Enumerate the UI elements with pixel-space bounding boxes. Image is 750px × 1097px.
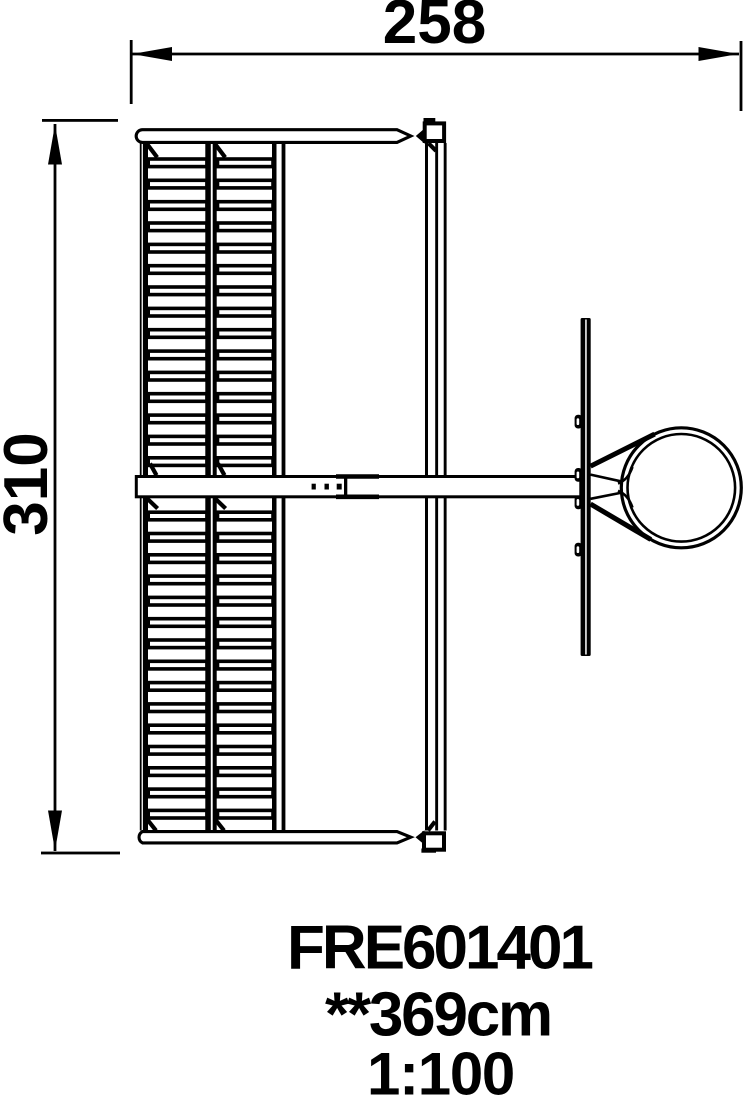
svg-text:310: 310 — [0, 432, 61, 535]
svg-text:1:100: 1:100 — [367, 1041, 514, 1097]
svg-text:FRE601401: FRE601401 — [287, 914, 592, 983]
svg-text:258: 258 — [383, 0, 486, 57]
svg-text:**369cm: **369cm — [325, 981, 551, 1050]
